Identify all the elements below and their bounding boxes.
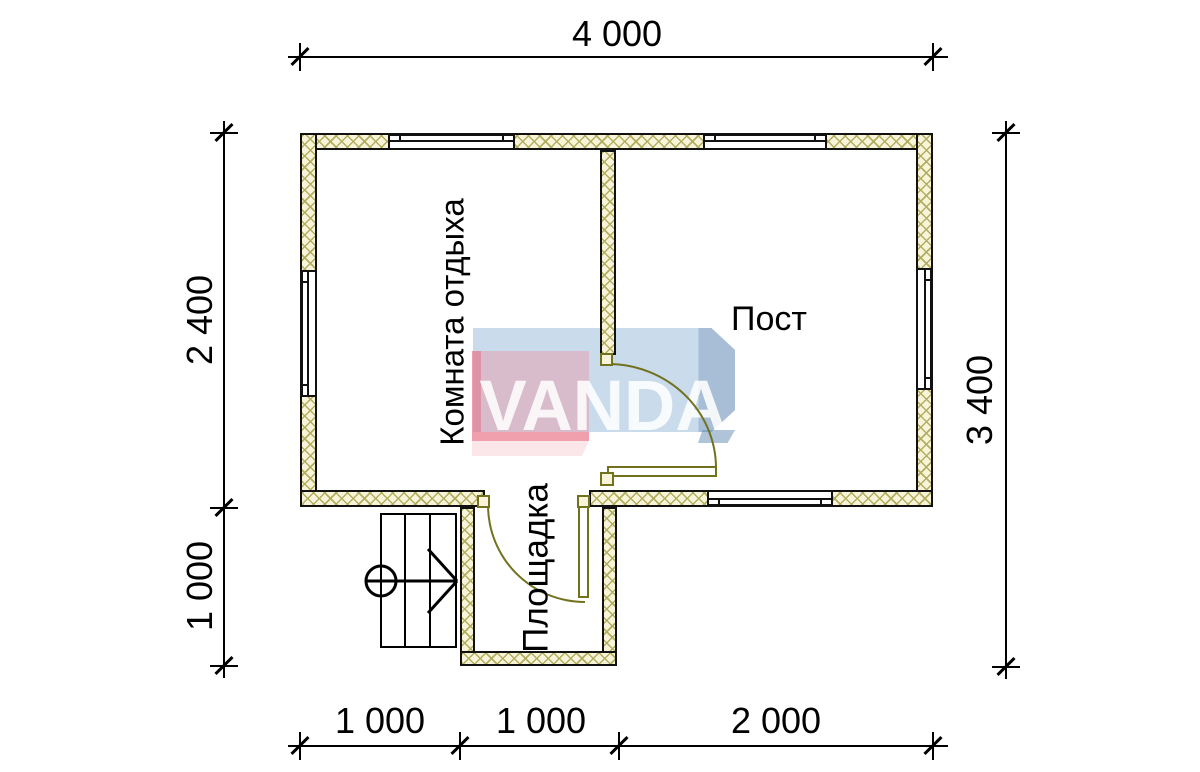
dim-line-left (223, 121, 225, 678)
dim-label-left-upper: 2 400 (182, 275, 218, 365)
wall-porch-right (602, 507, 617, 666)
dim-line-top (288, 56, 948, 58)
dim-line-bottom (288, 745, 948, 747)
dim-label-bottom-3: 2 000 (706, 703, 846, 739)
window-top-right-room (703, 133, 827, 150)
door-leaf-entrance (578, 503, 589, 598)
room-label-lounge: Комната отдыха (436, 198, 469, 445)
dim-line-right (1005, 121, 1007, 679)
wall-porch-bottom (460, 651, 617, 666)
dim-label-right: 3 400 (962, 355, 998, 445)
door-jamb-entrance-hinge (577, 495, 590, 508)
dim-label-bottom-1: 1 000 (310, 703, 450, 739)
room-label-post: Пост (731, 302, 807, 336)
dim-label-top: 4 000 (527, 16, 707, 52)
window-top-left-room (388, 133, 515, 150)
wall-interior (600, 150, 616, 355)
room-label-porch: Площадка (519, 483, 554, 653)
door-jamb-entrance-left (477, 495, 490, 508)
window-right-wall (916, 268, 933, 390)
window-left-wall (300, 270, 317, 397)
dim-label-left-lower: 1 000 (182, 541, 218, 631)
wall-bottom-left (300, 490, 485, 507)
door-jamb-interior-top (600, 353, 613, 366)
dim-label-bottom-2: 1 000 (471, 703, 611, 739)
stairs-direction-arrow (360, 536, 465, 628)
door-leaf-interior (607, 466, 717, 477)
floor-plan-canvas: VANDA 4 000 2 400 1 000 3 400 (0, 0, 1200, 772)
door-jamb-interior-hinge (600, 472, 614, 486)
window-bottom-wall (707, 490, 833, 507)
